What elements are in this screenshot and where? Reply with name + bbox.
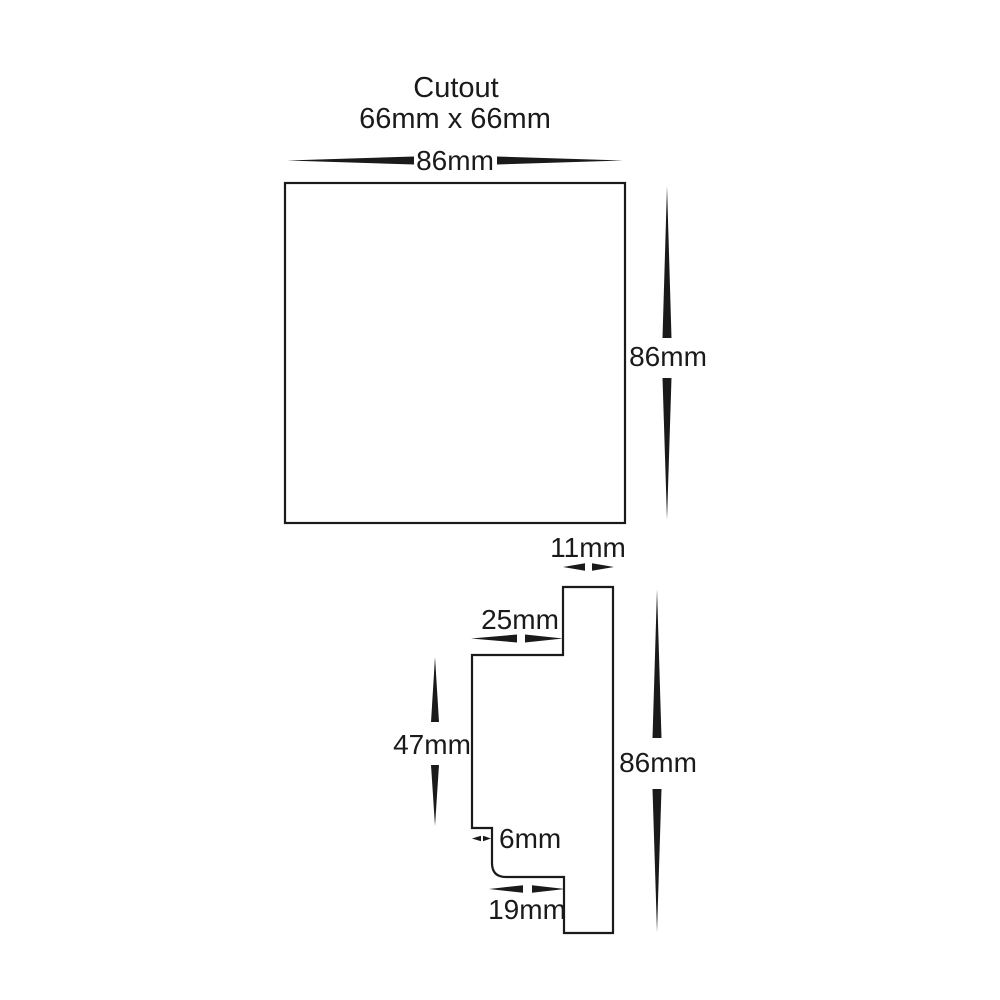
dim-arrow-down [431, 765, 439, 826]
top-tab-width-label: 11mm [550, 532, 626, 563]
dim-arrow-left [563, 563, 585, 571]
dim-arrow-left [287, 157, 414, 165]
dim-arrow-left [471, 635, 517, 643]
dim-arrow-right [525, 635, 563, 643]
dimension-diagram: Cutout 66mm x 66mm 86mm 86mm 11mm 25mm [0, 0, 1000, 1000]
top-view-height-label: 86mm [629, 341, 707, 372]
cutout-size-label: 66mm x 66mm [359, 103, 551, 135]
dim-arrow-left [472, 836, 481, 842]
upper-shelf-width-dimension: 25mm [471, 604, 563, 643]
dim-arrow-up [663, 186, 672, 338]
body-height-label: 47mm [393, 729, 471, 760]
top-tab-width-dimension: 11mm [550, 532, 626, 571]
dim-arrow-up [431, 657, 439, 722]
dim-arrow-right [532, 885, 565, 893]
dim-arrow-left [489, 885, 523, 893]
upper-shelf-width-label: 25mm [481, 604, 559, 635]
dim-arrow-up [653, 589, 662, 738]
dim-arrow-right [592, 563, 614, 571]
overall-height-dimension: 86mm [619, 589, 697, 932]
top-view-square-outline [285, 183, 625, 523]
step-depth-label: 6mm [499, 823, 561, 854]
body-height-dimension: 47mm [393, 657, 471, 826]
top-width-label: 86mm [416, 145, 494, 176]
cutout-title: Cutout [413, 72, 498, 104]
lower-shelf-width-dimension: 19mm [488, 885, 566, 925]
top-width-dimension: 86mm [287, 145, 623, 176]
dim-arrow-right [497, 157, 623, 165]
overall-height-label: 86mm [619, 747, 697, 778]
lower-shelf-width-label: 19mm [488, 894, 566, 925]
dim-arrow-right [483, 836, 491, 842]
dim-arrow-down [653, 789, 662, 932]
top-view-height-dimension: 86mm [629, 186, 707, 520]
dim-arrow-down [663, 378, 672, 520]
diagram-svg: Cutout 66mm x 66mm 86mm 86mm 11mm 25mm [0, 0, 1000, 1000]
